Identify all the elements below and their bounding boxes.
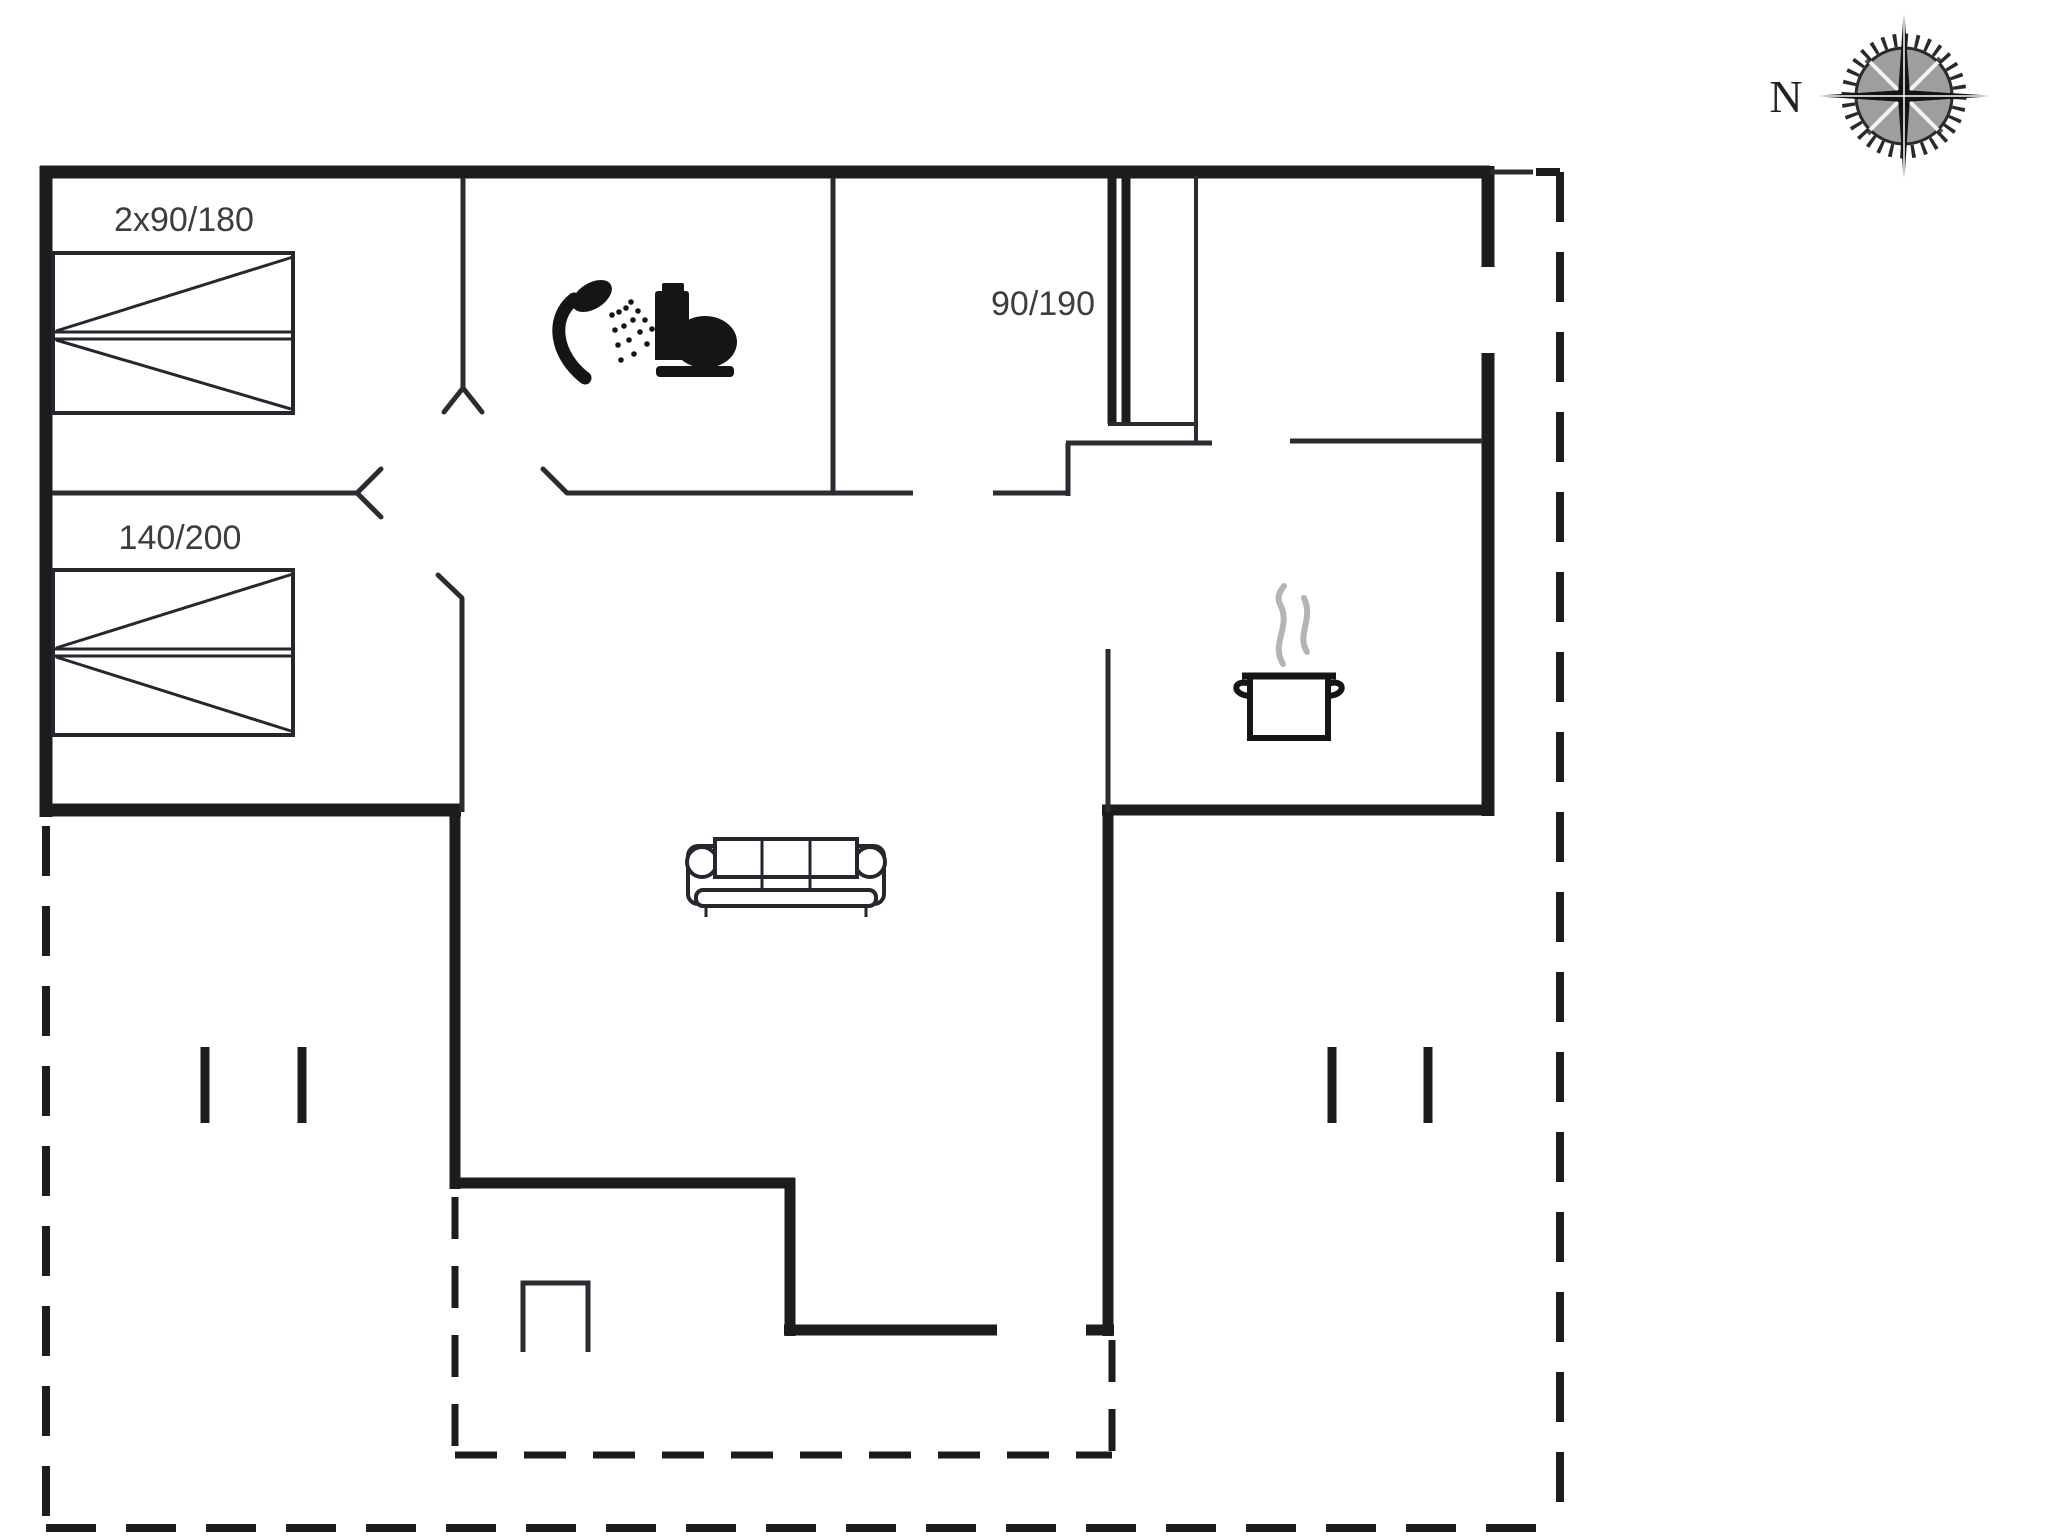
- sofa-arm-left: [687, 847, 717, 877]
- sofa-arm-right: [855, 847, 885, 877]
- floor-plan: 2x90/180 140/200 90/190: [0, 0, 2048, 1536]
- bathroom-door-opening: [444, 388, 482, 412]
- bed-outline: [53, 570, 293, 735]
- shower-spray-dots: [609, 299, 655, 363]
- compass-needle-highlight: [1811, 6, 1997, 186]
- sliding-door: [1108, 176, 1196, 443]
- bed-size-label: 90/190: [991, 285, 1095, 323]
- toilet-bowl: [673, 316, 737, 368]
- fireplace: [523, 1283, 588, 1352]
- steam-icon: [1279, 586, 1284, 664]
- sofa-front-seat: [696, 890, 876, 906]
- toilet-base: [656, 366, 734, 377]
- double-bed-140-200: [53, 570, 293, 735]
- bedroom1-door-opening: [357, 469, 381, 517]
- sofa-back-cushions: [715, 839, 857, 877]
- shower-icon: [559, 273, 655, 378]
- steam-icon: [1303, 598, 1307, 652]
- toilet-icon: [655, 283, 737, 377]
- cooking-pot-icon: [1236, 586, 1341, 738]
- double-bed-2x90-180: [53, 253, 293, 413]
- sofa-icon: [687, 839, 885, 917]
- pot-body: [1250, 676, 1328, 738]
- bed-size-label: 2x90/180: [114, 201, 254, 239]
- bed-size-label: 140/200: [119, 519, 242, 557]
- door-opening-marks: [357, 388, 567, 598]
- bedroom2-door-opening: [438, 575, 462, 598]
- hall-door-opening: [543, 469, 567, 493]
- compass-rose-icon: [1811, 6, 1997, 186]
- north-label: N: [1769, 71, 1802, 122]
- terrace-posts: [205, 1047, 1428, 1123]
